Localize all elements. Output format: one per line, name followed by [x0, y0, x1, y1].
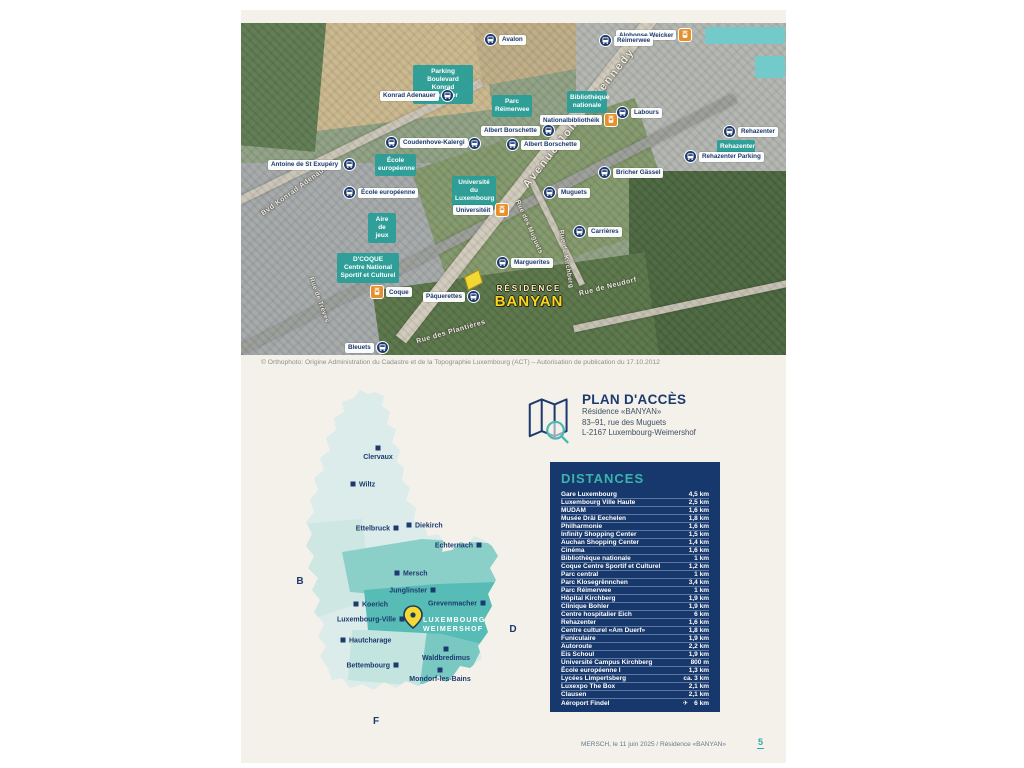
distance-label: Cinéma	[561, 547, 584, 554]
distance-row: Parc Réimerwee1 km	[561, 587, 709, 595]
distance-label: Lycées Limpertsberg	[561, 675, 626, 682]
distance-row: Funiculaire1,9 km	[561, 635, 709, 643]
poi-line: Université du	[455, 179, 493, 195]
poi-line: Aire de	[371, 216, 393, 232]
city-marker	[444, 647, 449, 652]
distance-value: 1,9 km	[689, 651, 709, 658]
bus-stop: Muguets	[543, 186, 590, 199]
city-label: Mersch	[403, 571, 428, 578]
bus-stop	[468, 137, 481, 150]
bus-stop: Avalon	[484, 33, 526, 46]
bus-icon	[385, 136, 398, 149]
distance-value: ca. 3 km	[683, 675, 709, 682]
residence-word: RÉSIDENCE	[474, 284, 584, 293]
distance-value: ✈6 km	[683, 699, 709, 707]
bus-stop: Carrières	[573, 225, 622, 238]
poi-box: D'COQUECentre NationalSportif et Culture…	[337, 253, 399, 283]
stop-label: Rehazenter	[738, 127, 778, 137]
distance-value: 4,5 km	[689, 491, 709, 498]
distance-label: Musée Dräi Eechelen	[561, 515, 626, 522]
bus-stop: Antoine de St Exupéry	[268, 158, 356, 171]
city-marker	[481, 601, 486, 606]
stop-label: Labours	[631, 108, 662, 118]
access-title: PLAN D'ACCÈS	[582, 392, 782, 407]
distance-row: Luxembourg Ville Haute2,5 km	[561, 499, 709, 507]
city-label: Junglinster	[389, 588, 427, 595]
distance-row: Cinéma1,6 km	[561, 547, 709, 555]
distance-row: Autoroute2,2 km	[561, 643, 709, 651]
distance-value: 1,6 km	[689, 507, 709, 514]
poi-line: Bibliothèque	[570, 94, 604, 102]
city-label: Echternach	[435, 543, 473, 550]
stop-label: Antoine de St Exupéry	[268, 160, 341, 170]
stop-label: Pâquerettes	[423, 292, 465, 302]
distance-row: Eis Schoul1,9 km	[561, 651, 709, 659]
distance-row: Musée Dräi Eechelen1,8 km	[561, 515, 709, 523]
city-label: Wiltz	[359, 482, 376, 489]
bus-icon	[598, 166, 611, 179]
city-marker	[351, 482, 356, 487]
bus-stop: Konrad Adenauer	[380, 89, 454, 102]
distance-value: 1,6 km	[689, 619, 709, 626]
distance-value: 2,1 km	[689, 683, 709, 690]
city-label: Luxembourg-Ville	[337, 617, 396, 624]
poi-line: jeux	[371, 232, 393, 240]
map-caption: © Orthophoto: Origine Administration du …	[261, 359, 781, 366]
distance-label: Auchan Shopping Center	[561, 539, 639, 546]
distance-row: Aéroport Findel✈6 km	[561, 699, 709, 707]
poi-line: École	[378, 157, 413, 165]
tram-icon	[370, 285, 384, 299]
poi-box: Université duLuxembourg	[452, 176, 496, 206]
stop-label: Albert Borschette	[521, 140, 580, 150]
bus-icon	[506, 138, 519, 151]
distance-row: École européenne I1,3 km	[561, 667, 709, 675]
tram-icon	[495, 203, 509, 217]
distance-row: Coque Centre Sportif et Culturel1,2 km	[561, 563, 709, 571]
poi-box: Écoleeuropéenne	[375, 154, 416, 176]
stop-label: Bleuets	[345, 343, 374, 353]
stop-label: Coque	[386, 287, 412, 297]
teal-mask-rect	[755, 56, 785, 78]
brochure-page: Avenue John F. KennedyBvd Konrad Adenaue…	[241, 10, 786, 763]
tram-stop: Coque	[370, 285, 412, 299]
page-number: 5	[757, 737, 764, 749]
teal-mask-rect	[705, 27, 785, 44]
distance-row: Parc central1 km	[561, 571, 709, 579]
bus-icon	[616, 106, 629, 119]
distance-label: Rehazenter	[561, 619, 596, 626]
distance-row: Gare Luxembourg4,5 km	[561, 491, 709, 499]
stop-label: Coudenhove-Kalergi	[400, 138, 468, 148]
distance-row: Lycées Limpertsbergca. 3 km	[561, 675, 709, 683]
distance-value: 1 km	[694, 555, 709, 562]
poi-line: Parc	[495, 98, 529, 106]
city-marker	[431, 588, 436, 593]
distance-value: 1,5 km	[689, 531, 709, 538]
highlight-label-line: WEIMERSHOF	[423, 626, 483, 633]
bus-icon	[723, 125, 736, 138]
distance-label: Bibliothèque nationale	[561, 555, 631, 562]
distance-value: 3,4 km	[689, 579, 709, 586]
distance-label: Université Campus Kirchberg	[561, 659, 652, 666]
poi-box: Aire dejeux	[368, 213, 396, 243]
bus-icon	[441, 89, 454, 102]
distance-label: Parc central	[561, 571, 598, 578]
distance-row: Infinity Shopping Center1,5 km	[561, 531, 709, 539]
distance-value: 1 km	[694, 587, 709, 594]
city-marker	[477, 543, 482, 548]
bus-stop: Labours	[616, 106, 662, 119]
highlight-label-line: LUXEMBOURG	[423, 617, 486, 624]
distance-label: Eis Schoul	[561, 651, 594, 658]
distance-label: Funiculaire	[561, 635, 596, 642]
bus-stop: Coudenhove-Kalergi	[385, 136, 468, 149]
bus-stop: Rehazenter Parking	[684, 150, 764, 163]
stop-label: Réimerwee	[614, 36, 653, 46]
distance-value: 1,6 km	[689, 547, 709, 554]
bus-stop: École européenne	[343, 186, 418, 199]
access-address-line: Résidence «BANYAN»	[582, 407, 782, 418]
city-label: Clervaux	[363, 454, 393, 461]
bus-icon	[573, 225, 586, 238]
distance-value: 1,9 km	[689, 635, 709, 642]
distance-label: Luxembourg Ville Haute	[561, 499, 635, 506]
city-marker	[376, 446, 381, 451]
distance-row: Université Campus Kirchberg800 m	[561, 659, 709, 667]
distance-value: 1,6 km	[689, 523, 709, 530]
residence-banyan-label: RÉSIDENCE BANYAN	[474, 284, 584, 310]
distance-row: Hôpital Kirchberg1,9 km	[561, 595, 709, 603]
distance-row: Clausen2,1 km	[561, 691, 709, 699]
stop-label: École européenne	[358, 188, 418, 198]
stop-label: Konrad Adenauer	[380, 91, 439, 101]
distance-label: Aéroport Findel	[561, 700, 609, 707]
city-label: Waldbredimus	[422, 655, 470, 662]
distance-row: Bibliothèque nationale1 km	[561, 555, 709, 563]
bus-stop: Marguerites	[496, 256, 553, 269]
distance-label: Centre hospitalier Eich	[561, 611, 632, 618]
distance-value: 1,9 km	[689, 595, 709, 602]
folded-map-magnifier-icon	[527, 395, 573, 452]
distance-value: 2,5 km	[689, 499, 709, 506]
bus-icon	[496, 256, 509, 269]
distance-value: 1,9 km	[689, 603, 709, 610]
plane-icon: ✈	[683, 699, 688, 707]
distance-label: Infinity Shopping Center	[561, 531, 636, 538]
bus-stop: Albert Borschette	[506, 138, 580, 151]
bus-stop: Albert Borschette	[481, 124, 555, 137]
bus-stop: Rehazenter	[723, 125, 778, 138]
distance-label: Coque Centre Sportif et Culturel	[561, 563, 660, 570]
distances-rows: Gare Luxembourg4,5 kmLuxembourg Ville Ha…	[561, 491, 709, 707]
stop-label: Rehazenter Parking	[699, 152, 764, 162]
poi-line: Réimerwee	[495, 106, 529, 114]
distance-label: Luxexpo The Box	[561, 683, 615, 690]
bus-icon	[542, 124, 555, 137]
distance-row: Luxexpo The Box2,1 km	[561, 683, 709, 691]
city-label: Diekirch	[415, 523, 443, 530]
city-label: Ettelbruck	[356, 526, 390, 533]
stop-label: Muguets	[558, 188, 590, 198]
bus-stop: Réimerwee	[599, 34, 653, 47]
country-districts	[292, 384, 522, 729]
stop-label: Carrières	[588, 227, 622, 237]
neighbor-letter: B	[296, 576, 303, 587]
distance-label: MUDAM	[561, 507, 586, 514]
poi-box: Bibliothèquenationale	[567, 91, 607, 113]
bus-icon	[343, 186, 356, 199]
city-marker	[394, 526, 399, 531]
neighbor-letter: F	[373, 716, 379, 727]
distance-value: 800 m	[691, 659, 709, 666]
distance-row: Parc Klosegrënnchen3,4 km	[561, 579, 709, 587]
distance-row: Centre hospitalier Eich6 km	[561, 611, 709, 619]
distance-row: Clinique Bohler1,9 km	[561, 603, 709, 611]
city-label: Bettembourg	[346, 663, 390, 670]
city-marker	[395, 571, 400, 576]
city-marker	[438, 668, 443, 673]
poi-line: Parking Boulevard	[416, 68, 470, 84]
distance-value: 1,3 km	[689, 667, 709, 674]
bus-stop: Bleuets	[345, 341, 389, 354]
banyan-word: BANYAN	[474, 293, 584, 310]
bus-icon	[543, 186, 556, 199]
bus-icon	[468, 137, 481, 150]
bus-icon	[376, 341, 389, 354]
poi-line: européenne	[378, 165, 413, 173]
tram-stop: Universitéit	[453, 203, 509, 217]
distance-row: Rehazenter1,6 km	[561, 619, 709, 627]
neighbor-letter: D	[509, 624, 516, 635]
city-marker	[394, 663, 399, 668]
distance-value: 1,2 km	[689, 563, 709, 570]
tram-icon	[678, 28, 692, 42]
city-label: Mondorf-les-Bains	[409, 676, 471, 683]
bus-stop: Bricher Gässel	[598, 166, 663, 179]
distances-panel: DISTANCES Gare Luxembourg4,5 kmLuxembour…	[550, 462, 720, 712]
poi-line: nationale	[570, 102, 604, 110]
bus-stop: Pâquerettes	[423, 290, 480, 303]
distance-row: Centre culturel «Am Duerf»1,8 km	[561, 627, 709, 635]
distance-row: MUDAM1,6 km	[561, 507, 709, 515]
distance-label: Hôpital Kirchberg	[561, 595, 616, 602]
stop-label: Avalon	[499, 35, 526, 45]
access-address-line: 83–91, rue des Muguets	[582, 418, 782, 429]
stop-label: Marguerites	[511, 258, 553, 268]
bus-icon	[343, 158, 356, 171]
footer-text: MERSCH, le 11 juin 2025 / Résidence «BAN…	[581, 741, 726, 748]
bus-icon	[484, 33, 497, 46]
city-label: Hautcharage	[349, 638, 392, 645]
distance-label: Clinique Bohler	[561, 603, 609, 610]
city-label: Koerich	[362, 602, 388, 609]
distance-label: Parc Klosegrënnchen	[561, 579, 628, 586]
stop-label: Bricher Gässel	[613, 168, 663, 178]
city-marker	[341, 638, 346, 643]
poi-line: Sportif et Culturel	[340, 272, 396, 280]
city-marker	[407, 523, 412, 528]
poi-line: D'COQUE	[340, 256, 396, 264]
access-plan-block: PLAN D'ACCÈS Résidence «BANYAN» 83–91, r…	[527, 392, 782, 439]
distance-row: Auchan Shopping Center1,4 km	[561, 539, 709, 547]
distance-value: 1,4 km	[689, 539, 709, 546]
bus-icon	[599, 34, 612, 47]
stop-label: Universitéit	[453, 205, 493, 215]
distance-value: 6 km	[694, 611, 709, 618]
distance-row: Philharmonie1,6 km	[561, 523, 709, 531]
country-map: ClervauxWiltzEttelbruckDiekirchEchternac…	[289, 384, 525, 729]
distance-label: Clausen	[561, 691, 586, 698]
distance-label: École européenne I	[561, 667, 621, 674]
distance-value: 1,8 km	[689, 627, 709, 634]
city-marker	[354, 602, 359, 607]
distances-title: DISTANCES	[561, 471, 709, 486]
stop-label: Albert Borschette	[481, 126, 540, 136]
distance-label: Autoroute	[561, 643, 592, 650]
distance-value: 1 km	[694, 571, 709, 578]
distance-value: 2,2 km	[689, 643, 709, 650]
city-label: Grevenmacher	[428, 601, 477, 608]
bus-icon	[684, 150, 697, 163]
aerial-map: Avenue John F. KennedyBvd Konrad Adenaue…	[241, 23, 786, 355]
poi-box: ParcRéimerwee	[492, 95, 532, 117]
distance-value: 2,1 km	[689, 691, 709, 698]
distance-label: Philharmonie	[561, 523, 602, 530]
distance-label: Parc Réimerwee	[561, 587, 611, 594]
access-address-line: L-2167 Luxembourg-Weimershof	[582, 428, 782, 439]
distance-value: 1,8 km	[689, 515, 709, 522]
poi-line: Centre National	[340, 264, 396, 272]
distance-label: Gare Luxembourg	[561, 491, 617, 498]
distance-label: Centre culturel «Am Duerf»	[561, 627, 645, 634]
